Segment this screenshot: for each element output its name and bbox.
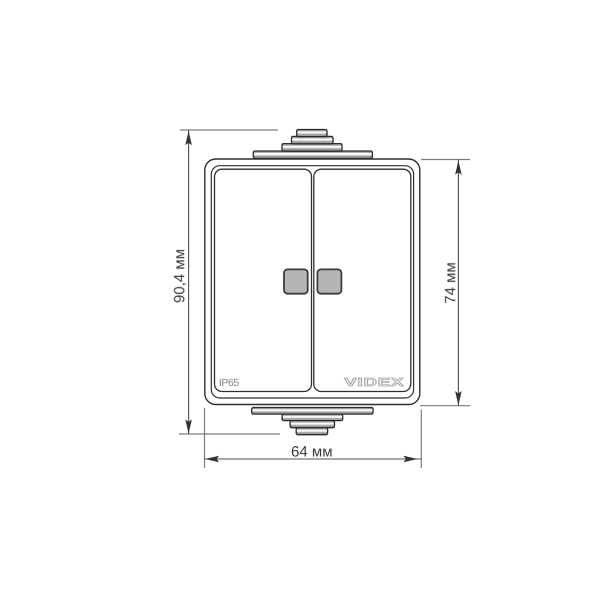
svg-text:90,4 мм: 90,4 мм [171, 249, 188, 303]
svg-text:74 мм: 74 мм [442, 262, 459, 303]
svg-text:64 мм: 64 мм [291, 444, 332, 461]
svg-text:IP65: IP65 [219, 378, 240, 389]
svg-text:VIDEX: VIDEX [344, 377, 404, 389]
